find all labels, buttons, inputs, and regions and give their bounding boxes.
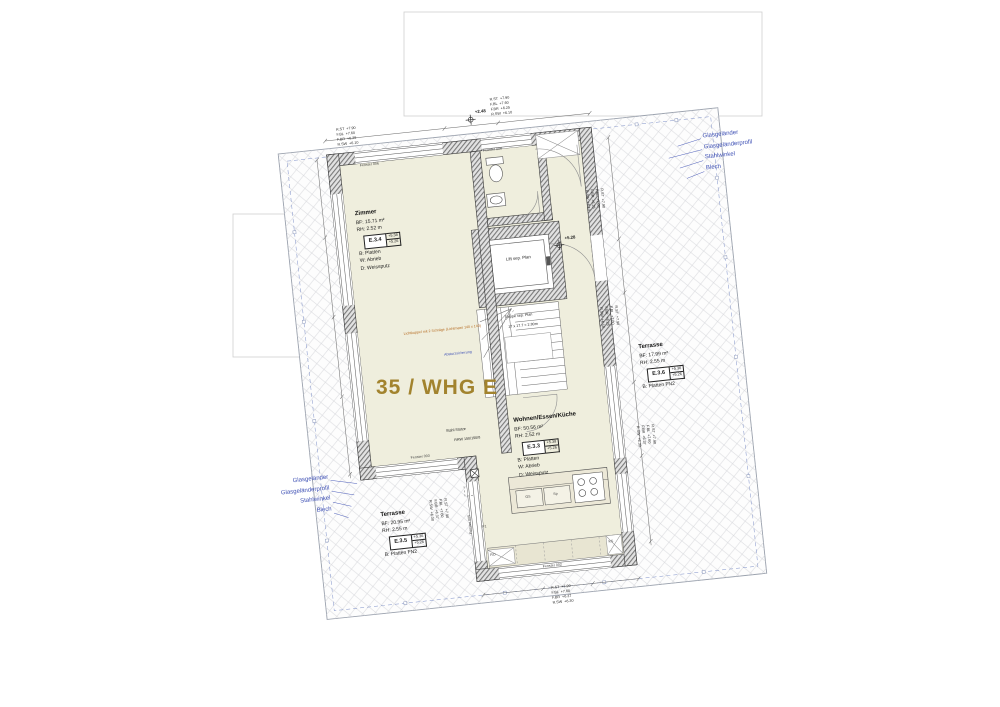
apartment-title: 35 / WHG E bbox=[376, 376, 498, 400]
floorplan-page: { "title": { "label": "35 / WHG E" }, "c… bbox=[0, 0, 1000, 707]
plan-drawing bbox=[0, 0, 1000, 707]
